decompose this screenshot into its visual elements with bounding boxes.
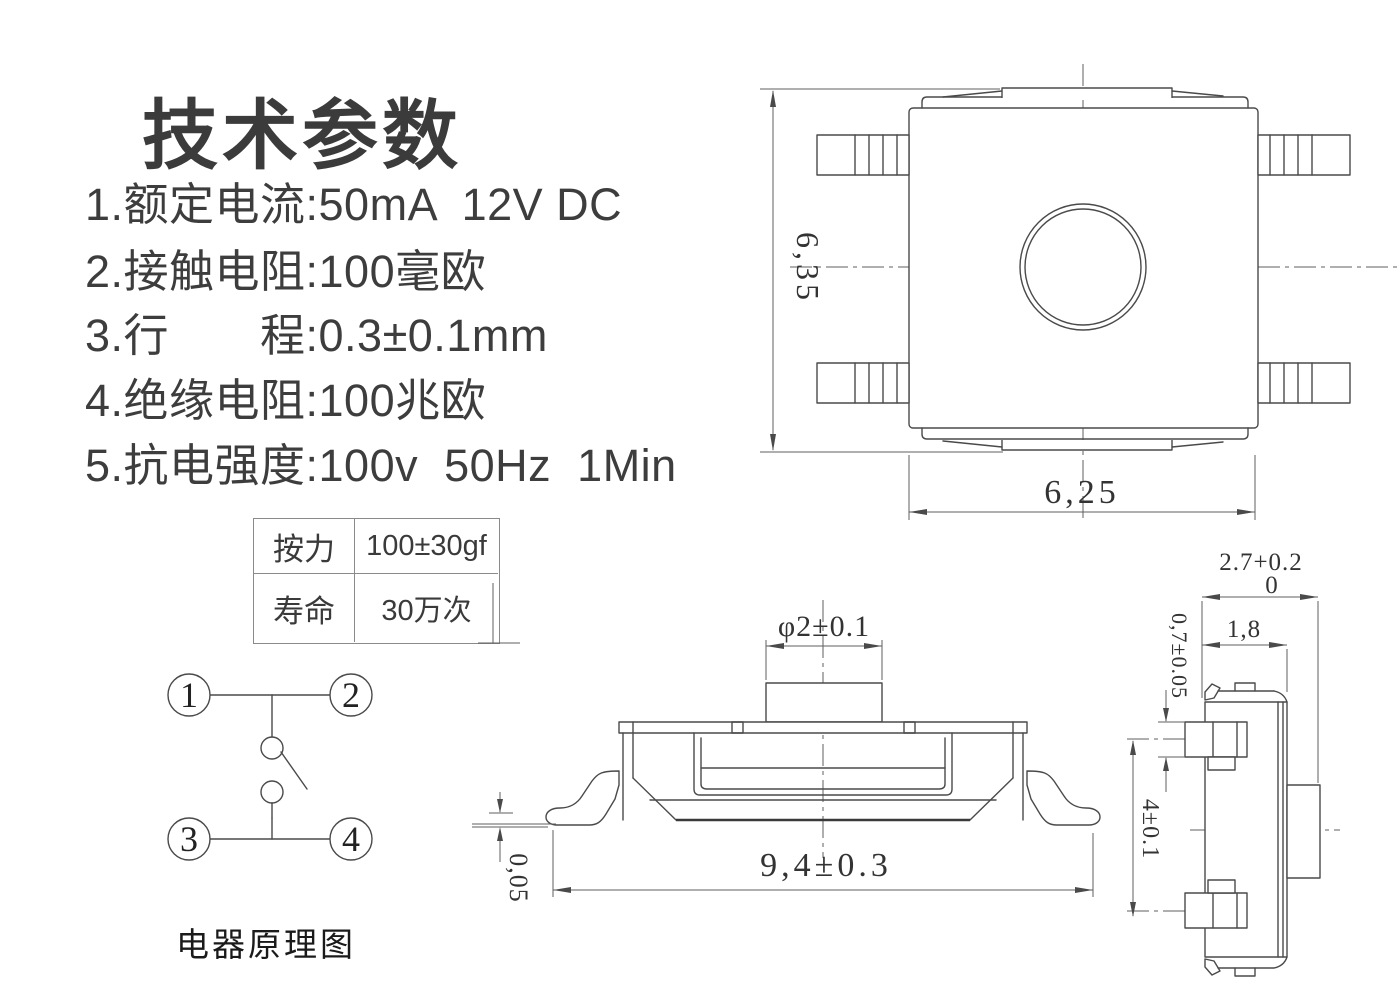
dimension-pin-pitch: 4±0.1 bbox=[1130, 740, 1163, 917]
dimension-front-width-label: 9,4±0.3 bbox=[760, 847, 892, 884]
side-view-drawing: 2.7+0.2 0 1,8 bbox=[1095, 540, 1400, 1000]
schematic-caption: 电器原理图 bbox=[176, 918, 356, 966]
terminal-2-label: 2 bbox=[342, 675, 360, 715]
dimension-standoff-label: 0,05 bbox=[504, 853, 533, 903]
dimension-pin-thickness-label: 0,7±0.05 bbox=[1167, 613, 1192, 699]
spec-line-insulation-resistance: 4.绝缘电阻:100兆欧 bbox=[85, 364, 486, 429]
table-cell-force-value: 100±30gf bbox=[355, 519, 498, 574]
dimension-pin-thickness: 0,7±0.05 bbox=[1158, 613, 1192, 792]
spec-line-contact-resistance: 2.接触电阻:100毫欧 bbox=[85, 235, 486, 300]
schematic-wires bbox=[210, 695, 330, 839]
dimension-side-depth-tol-label: 0 bbox=[1265, 572, 1279, 599]
datasheet-page: 技术参数 1.额定电流:50mA 12V DC 2.接触电阻:100毫欧 3.行… bbox=[0, 0, 1400, 1000]
side-view-button bbox=[1287, 785, 1320, 878]
terminal-4-label: 4 bbox=[342, 819, 360, 859]
terminal-1: 1 bbox=[168, 674, 210, 716]
side-view-top-hook bbox=[1205, 683, 1287, 702]
terminal-3: 3 bbox=[168, 818, 210, 860]
spec-line-dielectric-strength: 5.抗电强度:100v 50Hz 1Min bbox=[85, 429, 677, 494]
top-view-body bbox=[909, 88, 1258, 450]
top-view-drawing: 6,35 6,25 bbox=[755, 55, 1400, 530]
dimension-top-height-label: 6,35 bbox=[790, 232, 826, 304]
dimension-button-diameter: φ2±0.1 bbox=[766, 610, 882, 680]
dimension-side-body-depth: 1,8 bbox=[1202, 616, 1287, 692]
terminal-4: 4 bbox=[330, 818, 372, 860]
dimension-button-diameter-label: φ2±0.1 bbox=[778, 610, 870, 643]
dimension-top-width: 6,25 bbox=[909, 455, 1255, 520]
terminal-3-label: 3 bbox=[180, 819, 198, 859]
dimension-side-depth-label: 2.7+0.2 bbox=[1219, 549, 1303, 576]
dimension-front-width: 9,4±0.3 bbox=[553, 830, 1093, 897]
terminal-2: 2 bbox=[330, 674, 372, 716]
side-view-bottom-hook bbox=[1205, 957, 1287, 976]
front-view-drawing: φ2±0.1 bbox=[460, 572, 1120, 920]
table-cell-life-label: 寿命 bbox=[254, 574, 355, 642]
spec-line-travel: 3.行 程:0.3±0.1mm bbox=[85, 299, 548, 364]
partial-dimension-line bbox=[478, 583, 520, 643]
dimension-pin-pitch-label: 4±0.1 bbox=[1137, 799, 1163, 859]
dimension-top-width-label: 6,25 bbox=[1044, 474, 1120, 511]
schematic-contacts bbox=[261, 737, 283, 803]
terminal-1-label: 1 bbox=[180, 675, 198, 715]
seating-plane-line bbox=[472, 824, 556, 827]
circuit-schematic: 1 2 3 4 bbox=[150, 655, 395, 885]
spec-line-rated-current: 1.额定电流:50mA 12V DC bbox=[85, 168, 622, 233]
table-cell-force-label: 按力 bbox=[254, 519, 355, 574]
dimension-side-body-depth-label: 1,8 bbox=[1227, 616, 1261, 643]
dimension-standoff: 0,05 bbox=[489, 792, 533, 903]
